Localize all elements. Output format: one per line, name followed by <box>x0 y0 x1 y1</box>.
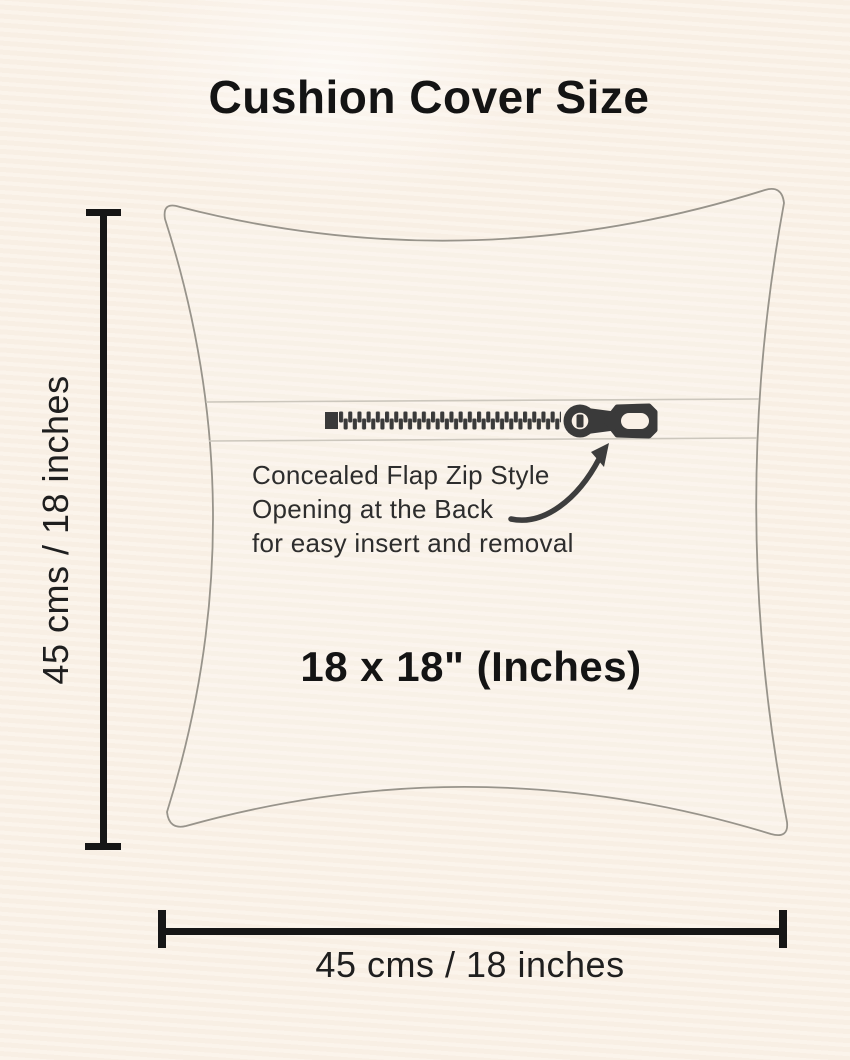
zipper-note-line-2: Opening at the Back <box>252 492 574 526</box>
zipper-pull-hole <box>621 413 649 429</box>
cushion-size-label: 18 x 18" (Inches) <box>300 643 641 691</box>
zipper-note: Concealed Flap Zip Style Opening at the … <box>252 458 574 560</box>
horizontal-dimension-line <box>158 910 787 948</box>
vertical-dimension-label: 45 cms / 18 inches <box>35 375 77 684</box>
zipper-note-line-1: Concealed Flap Zip Style <box>252 458 574 492</box>
vertical-dimension-line <box>85 209 121 850</box>
horizontal-dimension-label: 45 cms / 18 inches <box>315 944 624 986</box>
zipper-note-line-3: for easy insert and removal <box>252 526 574 560</box>
zipper-teeth <box>339 412 561 430</box>
zipper-stop <box>325 412 338 429</box>
